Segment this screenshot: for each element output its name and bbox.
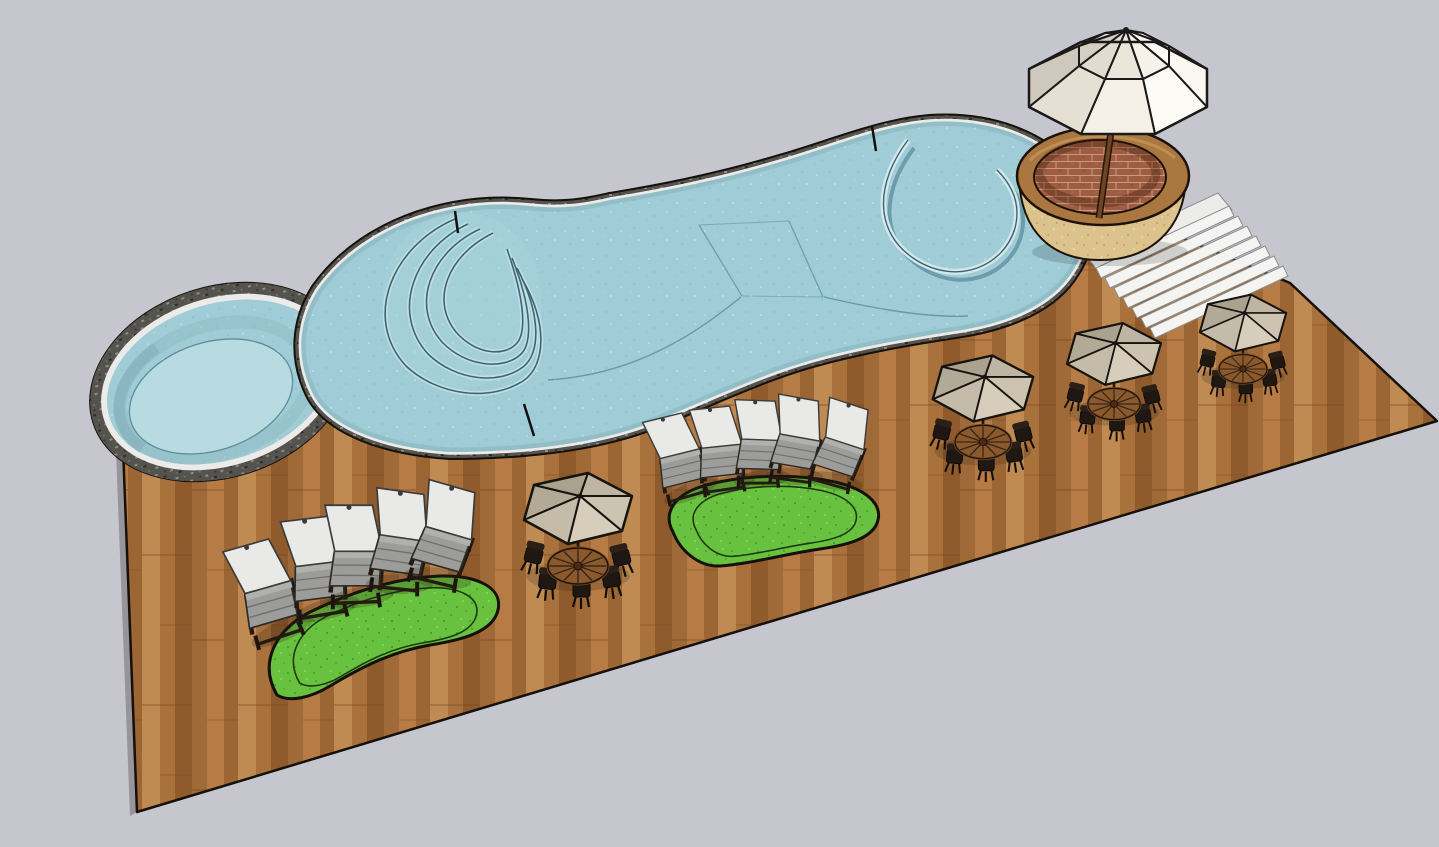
umbrella-finial [1123, 27, 1129, 33]
render-viewport[interactable] [0, 0, 1439, 847]
scene-canvas[interactable] [0, 0, 1439, 847]
